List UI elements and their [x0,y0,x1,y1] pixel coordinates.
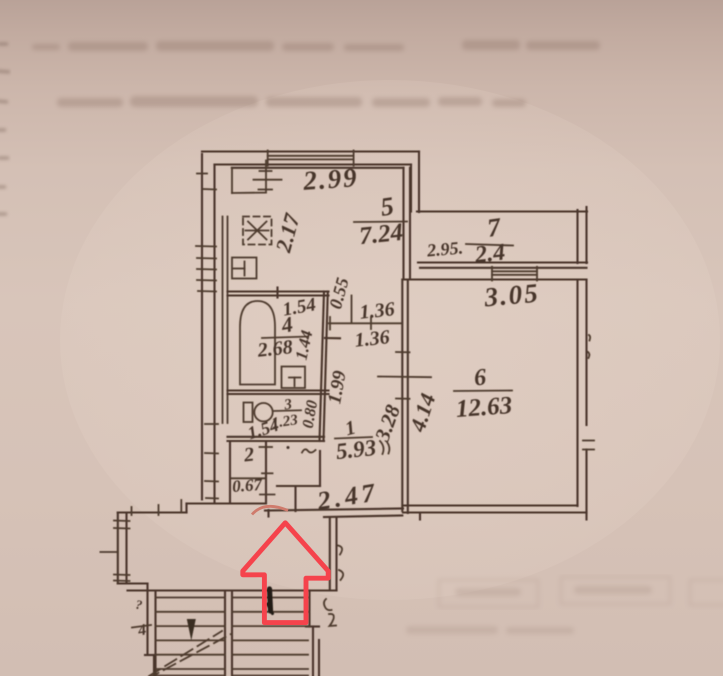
svg-text:2.68: 2.68 [256,336,294,362]
svg-text:7.24: 7.24 [358,219,404,250]
svg-text:5.93: 5.93 [335,435,378,464]
svg-text:12.63: 12.63 [455,392,513,423]
svg-text:2: 2 [242,444,255,467]
svg-text:6: 6 [473,365,487,392]
svg-text:1.36: 1.36 [354,326,391,352]
svg-text:0.67: 0.67 [232,475,264,496]
svg-text:1.36: 1.36 [359,298,396,324]
svg-text:2.95.: 2.95. [425,237,464,260]
svg-text:2.4: 2.4 [473,239,507,268]
svg-text:2.99: 2.99 [301,162,359,196]
svg-text:3.05: 3.05 [482,278,541,313]
